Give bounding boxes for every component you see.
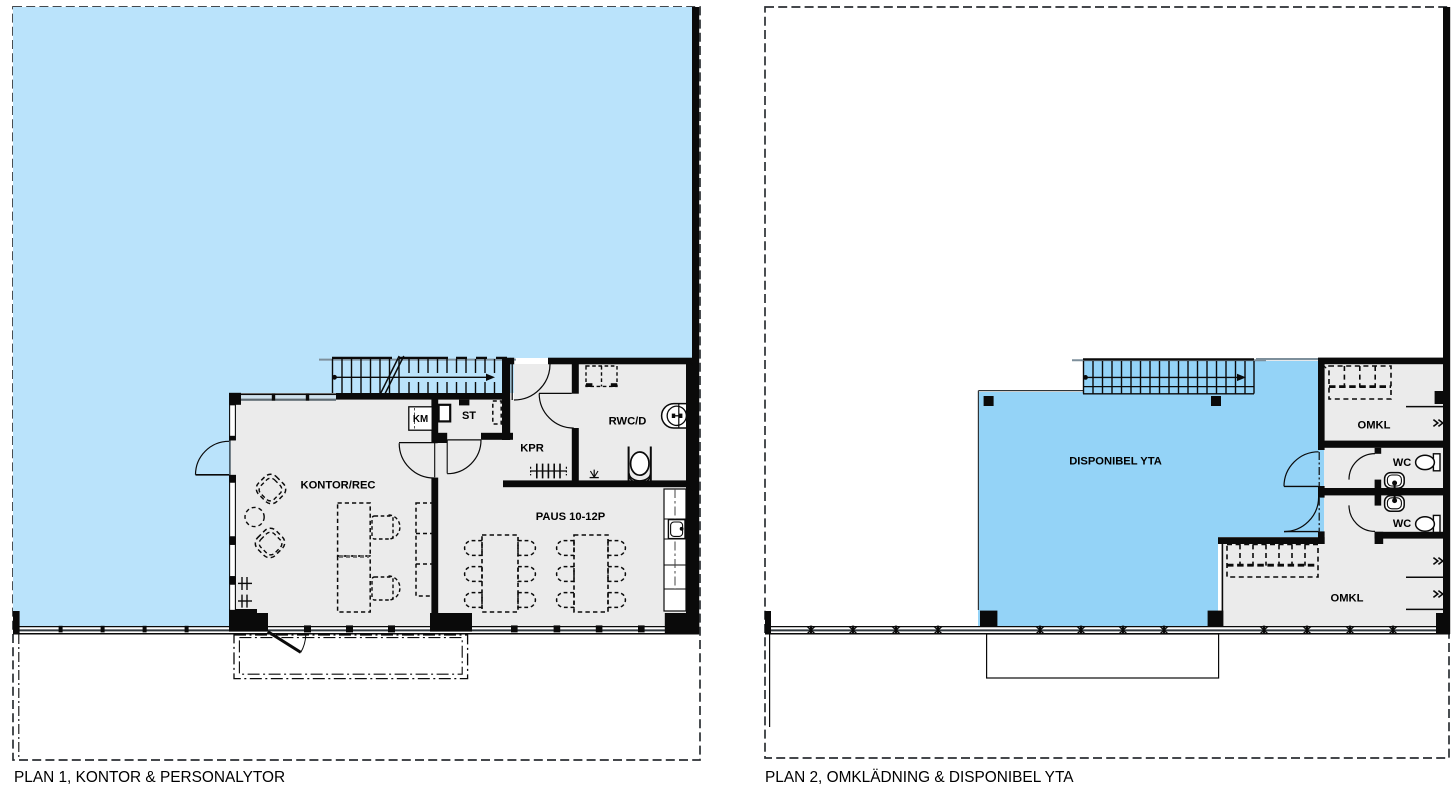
svg-text:KPR: KPR (520, 443, 544, 455)
svg-text:PLAN 2, OMKLÄDNING & DISPONIBE: PLAN 2, OMKLÄDNING & DISPONIBEL YTA (765, 769, 1074, 786)
svg-text:WC: WC (1393, 457, 1411, 469)
svg-text:WC: WC (1393, 518, 1411, 530)
svg-text:KONTOR/REC: KONTOR/REC (300, 480, 375, 492)
svg-text:OMKL: OMKL (1331, 593, 1364, 605)
svg-text:PLAN 1, KONTOR & PERSONALYTOR: PLAN 1, KONTOR & PERSONALYTOR (14, 769, 285, 786)
svg-text:PAUS 10-12P: PAUS 10-12P (536, 511, 606, 523)
svg-text:ST: ST (462, 410, 476, 422)
svg-text:DISPONIBEL YTA: DISPONIBEL YTA (1069, 456, 1162, 468)
svg-text:OMKL: OMKL (1358, 420, 1391, 432)
svg-text:KM: KM (413, 414, 428, 425)
svg-text:RWC/D: RWC/D (609, 415, 647, 427)
